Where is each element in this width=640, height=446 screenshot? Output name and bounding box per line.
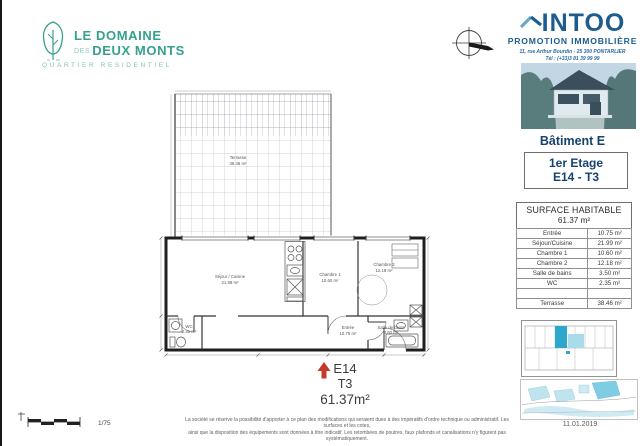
surface-table: Entrée10.75 m² Séjour/Cuisine21.99 m² Ch… (516, 228, 632, 309)
floor-plan-drawing: Terrasse 38.46 m² (158, 88, 430, 358)
table-row: Chambre 212.18 m² (517, 259, 632, 269)
room-area-sdb: 3.50 m² (384, 330, 399, 335)
room-label-sejour: Séjour / Cuisine (215, 274, 246, 279)
room-name: Chambre 1 (517, 249, 588, 259)
room-area-chambre2: 12.18 m² (376, 268, 394, 273)
floor-label: 1er Etage (525, 156, 627, 170)
room-area: 2.35 m² (588, 279, 632, 289)
room-area: 3.50 m² (588, 269, 632, 279)
plan-date: 11.01.2019 (540, 421, 620, 428)
room-name: Chambre 2 (517, 259, 588, 269)
room-area-chambre1: 10.60 m² (322, 278, 340, 283)
surface-title: SURFACE HABITABLE (517, 205, 631, 215)
unit-summary: E14 T3 61.37m² (300, 361, 390, 407)
unit-area: 61.37m² (300, 392, 390, 407)
unit-type: T3 (300, 377, 390, 391)
scan-edge-line (0, 0, 2, 446)
north-compass-icon (448, 23, 496, 63)
table-row: Entrée10.75 m² (517, 229, 632, 239)
table-row (517, 289, 632, 299)
room-name: WC (517, 279, 588, 289)
room-name: Salle de bains (517, 269, 588, 279)
disclaimer-line2: ainsi que la disposition des équipements… (180, 430, 514, 443)
room-area: 21.99 m² (588, 239, 632, 249)
terrace-label: Terrasse (230, 155, 247, 160)
site-plan-sketch (520, 379, 638, 420)
room-area: 10.75 m² (588, 229, 632, 239)
developer-name: INTOO (542, 9, 626, 37)
graphic-scale-bar: 1/75 (18, 410, 128, 434)
room-name (517, 289, 588, 299)
room-area-wc: 2.35 m² (182, 329, 197, 334)
surface-header: SURFACE HABITABLE 61.37 m² (516, 202, 632, 229)
room-area: 12.18 m² (588, 259, 632, 269)
brand-subtitle: QUARTIER RESIDENTIEL (42, 62, 172, 69)
room-label-entree: Entrée (342, 325, 355, 330)
room-area-entree: 10.75 m² (340, 331, 358, 336)
building-title: Bâtiment E (505, 134, 640, 148)
disclaimer-line1: La société se réserve la possibilité d'a… (180, 417, 514, 430)
roof-caret-icon (520, 14, 542, 29)
developer-block: INTOO PROMOTION IMMOBILIÈRE 11, rue Arth… (505, 10, 640, 62)
table-row: WC2.35 m² (517, 279, 632, 289)
room-label-chambre1: Chambre 1 (319, 272, 341, 277)
room-name: Entrée (517, 229, 588, 239)
room-area: 10.60 m² (588, 249, 632, 259)
highlighted-terrace (568, 334, 584, 348)
plan-sheet: LE DOMAINE DESDEUX MONTS QUARTIER RESIDE… (0, 0, 640, 446)
brand-name-line2: DESDEUX MONTS (74, 43, 185, 58)
room-name: Terrasse (517, 299, 588, 309)
brand-name-des: DES (74, 48, 90, 55)
developer-tagline: PROMOTION IMMOBILIÈRE (505, 36, 640, 46)
house-photo (521, 63, 636, 129)
developer-address-line: 11, rue Arthur Bourdin - 25 300 PONTARLI… (505, 49, 640, 56)
table-row: Séjour/Cuisine21.99 m² (517, 239, 632, 249)
table-row: Terrasse38.46 m² (517, 299, 632, 309)
windows (182, 236, 410, 241)
highlighted-unit (555, 326, 567, 348)
table-row: Chambre 110.60 m² (517, 249, 632, 259)
room-area-sejour: 21.99 m² (222, 280, 240, 285)
legal-disclaimer: La société se réserve la possibilité d'a… (180, 417, 514, 442)
surface-total: 61.37 m² (517, 216, 631, 225)
developer-logo: INTOO (505, 10, 640, 36)
room-label-chambre2: Chambre 2 (373, 262, 395, 267)
tree-icon (38, 20, 68, 62)
scale-ratio: 1/75 (98, 420, 111, 427)
terrace-area: 38.46 m² (230, 161, 248, 166)
table-row: Salle de bains3.50 m² (517, 269, 632, 279)
developer-phone: Tél : (+33)3 81 39 99 99 (505, 56, 640, 63)
developer-address: 11, rue Arthur Bourdin - 25 300 PONTARLI… (505, 49, 640, 62)
unit-locator-keyplan (521, 320, 617, 377)
brand-name-line1: LE DOMAINE (74, 28, 162, 43)
unit-code: E14 (300, 361, 390, 376)
terrace: Terrasse 38.46 m² (175, 94, 331, 238)
floor-unit-box: 1er Etage E14 - T3 (524, 152, 628, 189)
brand-name-main: DEUX MONTS (92, 43, 185, 58)
room-area (588, 289, 632, 299)
room-area: 38.46 m² (588, 299, 632, 309)
brand-logo: LE DOMAINE DESDEUX MONTS QUARTIER RESIDE… (30, 18, 230, 78)
room-name: Séjour/Cuisine (517, 239, 588, 249)
unit-ref: E14 - T3 (525, 170, 627, 184)
